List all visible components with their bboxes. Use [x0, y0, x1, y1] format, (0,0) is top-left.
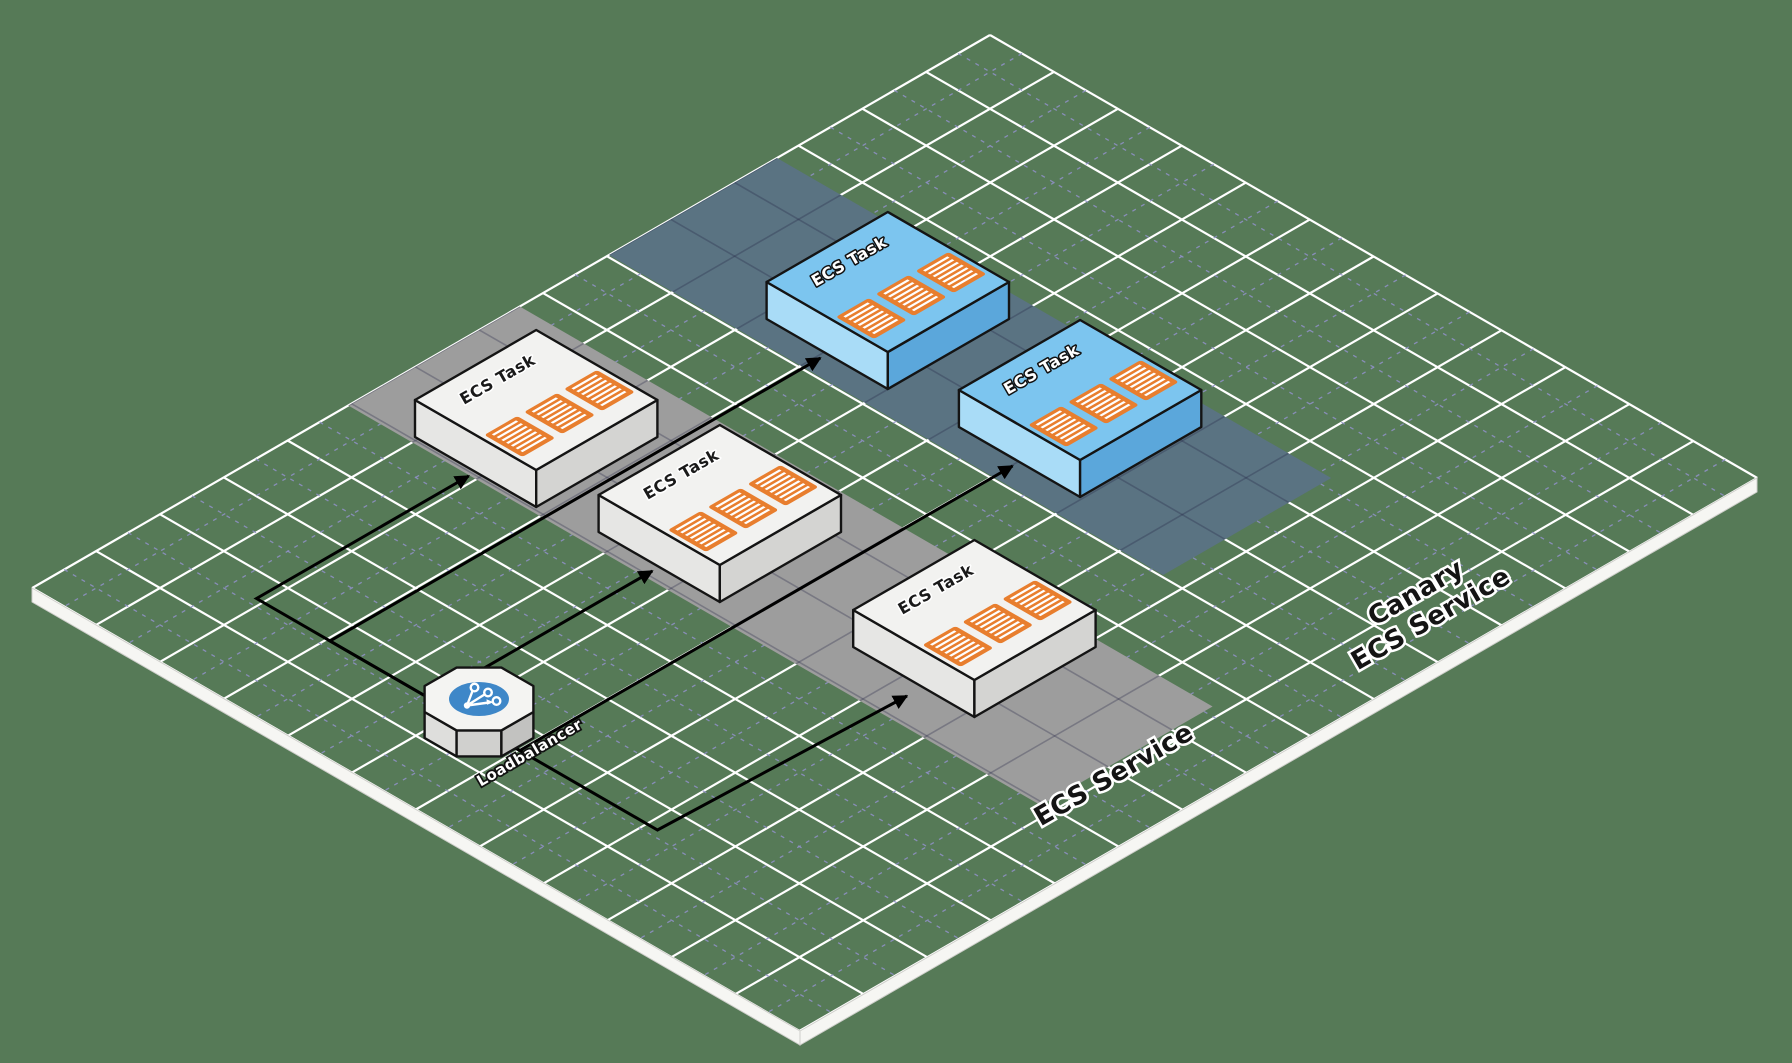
- lb-bottom-face: [457, 730, 502, 756]
- isometric-diagram: ECS Service Canary ECS Service ECS Task …: [0, 0, 1792, 1063]
- diagram-canvas: ECS Service Canary ECS Service ECS Task …: [0, 0, 1792, 1063]
- load-balancer[interactable]: [425, 668, 534, 757]
